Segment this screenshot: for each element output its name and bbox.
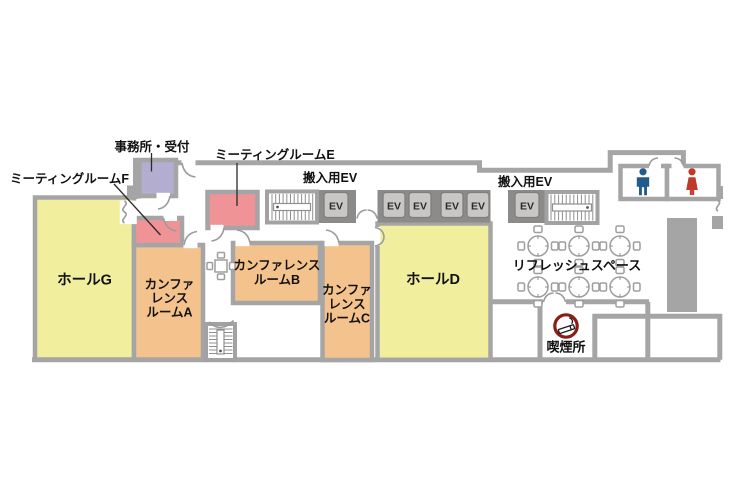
smoking-icon <box>555 315 577 337</box>
restrooms <box>621 166 719 199</box>
room-office-reception <box>140 160 177 196</box>
meeting-room-e-label: ミーティングルームE <box>215 147 335 162</box>
staircase-west <box>267 192 317 223</box>
conference-room-c-label-line: カンファ <box>322 283 372 297</box>
conference-room-c-label-line: ルームC <box>324 312 370 326</box>
conference-room-b-label-line: ルームB <box>254 273 300 287</box>
conference-room-a-label-line: ルームA <box>146 306 192 320</box>
conference-room-a-label-line: レンス <box>151 292 188 306</box>
smoking-area-label: 喫煙所 <box>546 340 585 355</box>
service-elevator-right-label: 搬入用EV <box>498 174 553 189</box>
elevator-car-label: EV <box>520 201 534 213</box>
elevator-car-label: EV <box>445 201 459 213</box>
double-door-arc <box>544 293 566 302</box>
service-elevator-left-label: 搬入用EV <box>303 170 358 185</box>
floor-plan-svg: EV EV EV EV EV EV <box>0 0 740 500</box>
hall-d-label: ホールD <box>406 271 460 288</box>
conference-room-a-label: カンファ レンス ルームA <box>145 278 195 320</box>
conference-room-c-label-line: レンス <box>328 298 365 312</box>
room-hall-d <box>378 224 491 360</box>
room-meeting-e <box>208 192 258 228</box>
conference-room-b-label-line: カンファレンス <box>234 259 321 273</box>
wall-block <box>667 218 697 312</box>
staircase-east <box>547 192 598 223</box>
elevator-car-label: EV <box>329 201 343 213</box>
wall <box>595 316 720 360</box>
hall-g-label: ホールG <box>57 272 112 289</box>
elevator-car-label: EV <box>387 201 401 213</box>
elevator-car-label: EV <box>471 201 485 213</box>
office-reception-label: 事務所・受付 <box>114 139 190 154</box>
elevator-bands: EV EV EV EV EV EV <box>317 190 546 223</box>
double-door-arc <box>357 210 377 219</box>
wall-block <box>712 216 723 229</box>
conference-room-c-label: カンファ レンス ルームC <box>322 283 372 326</box>
meeting-room-f-label: ミーティングルームF <box>10 171 129 186</box>
staircase-south <box>206 324 235 360</box>
floor-plan-page: EV EV EV EV EV EV <box>0 0 740 500</box>
conference-room-a-label-line: カンファ <box>145 278 195 292</box>
door-swing-squiggle <box>716 201 719 212</box>
refresh-space-label: リフレッシュスペース <box>513 258 641 273</box>
elevator-car-label: EV <box>413 201 427 213</box>
